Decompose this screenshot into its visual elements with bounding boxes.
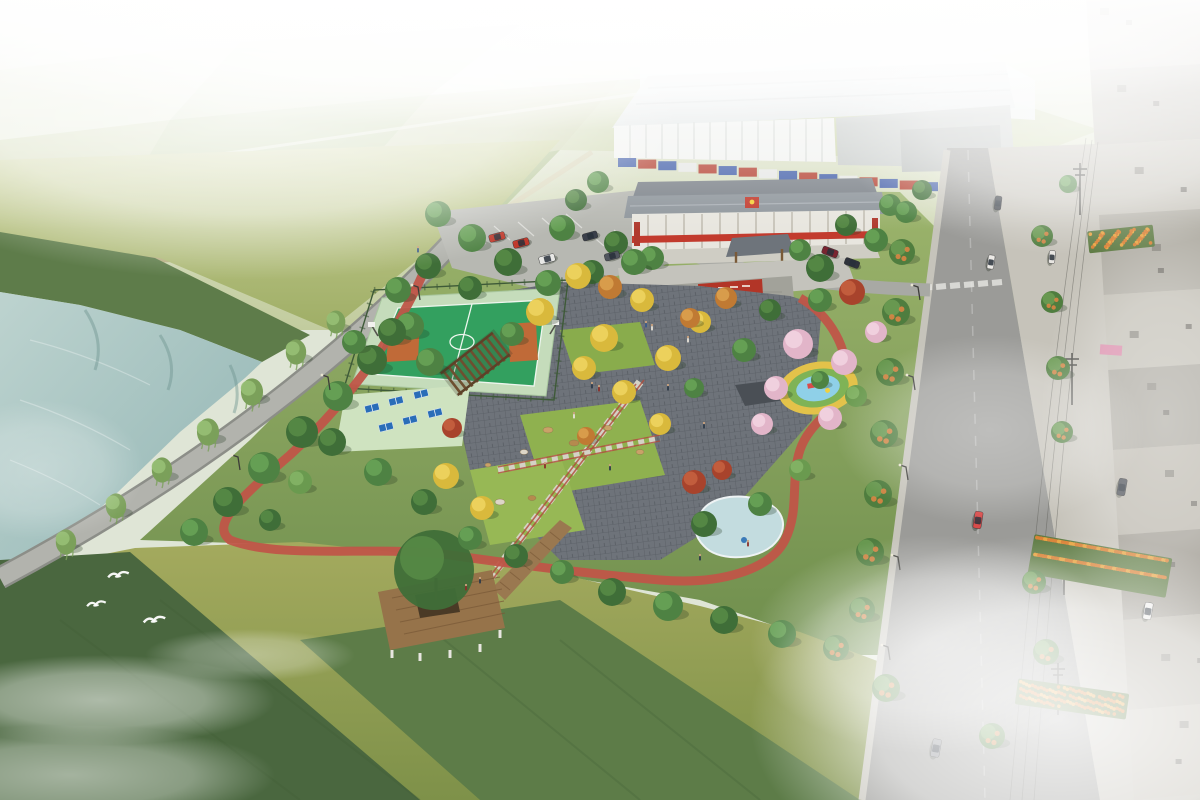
- tree-canopy-highlight: [574, 357, 588, 371]
- person: [651, 324, 653, 331]
- tree-canopy-highlight: [681, 309, 693, 321]
- tree-canopy-highlight: [753, 414, 766, 427]
- pond-play-equipment: [741, 537, 747, 543]
- tree-canopy-highlight: [600, 580, 616, 596]
- bloom-cluster: [901, 256, 906, 261]
- tree-canopy-highlight: [344, 331, 358, 345]
- tree-canopy-highlight: [812, 372, 822, 382]
- bloom-cluster: [1051, 305, 1055, 309]
- person: [609, 464, 611, 471]
- person-head: [667, 384, 669, 386]
- tree-canopy-highlight: [152, 459, 166, 473]
- farm-sculpture: [520, 450, 528, 455]
- tree-canopy-highlight: [443, 419, 455, 431]
- person-body: [699, 556, 701, 561]
- person: [598, 385, 600, 392]
- bloom-cluster: [877, 498, 883, 504]
- person-body: [747, 542, 749, 547]
- person: [747, 540, 749, 547]
- bloom-cluster: [896, 254, 901, 259]
- tree-canopy-highlight: [785, 331, 802, 348]
- person-head: [747, 540, 749, 542]
- tree-canopy-highlight: [320, 430, 336, 446]
- tree-canopy-highlight: [791, 240, 804, 253]
- tree-canopy-highlight: [684, 471, 698, 485]
- tree-canopy-highlight: [506, 545, 520, 559]
- streetlight-lamp: [911, 284, 914, 287]
- tree-canopy-highlight: [867, 322, 880, 335]
- tree-canopy-highlight: [592, 326, 608, 342]
- tree-canopy-highlight: [891, 241, 906, 256]
- rendering-canvas: [0, 0, 1200, 800]
- person-body: [465, 586, 467, 591]
- person: [591, 382, 593, 389]
- tree-canopy-highlight: [623, 251, 638, 266]
- farm-sculpture: [495, 499, 505, 505]
- bloom-cluster: [871, 496, 877, 502]
- person: [544, 462, 546, 469]
- tree-canopy-highlight: [810, 289, 824, 303]
- person-body: [609, 466, 611, 471]
- person-head: [645, 321, 647, 323]
- tree-canopy-highlight: [528, 300, 544, 316]
- tree-canopy-highlight: [567, 265, 582, 280]
- tree-canopy-highlight: [693, 513, 708, 528]
- person-head: [544, 462, 546, 464]
- tree-canopy-highlight: [833, 351, 848, 366]
- person-head: [687, 336, 689, 338]
- person: [573, 412, 575, 419]
- farm-sculpture: [485, 463, 491, 467]
- person-head: [465, 584, 467, 586]
- person-head: [591, 382, 593, 384]
- tree-canopy-highlight: [215, 489, 232, 506]
- tree-canopy-highlight: [472, 497, 486, 511]
- person-body: [591, 384, 593, 389]
- person: [667, 384, 669, 391]
- tree-canopy-highlight: [250, 454, 269, 473]
- person-body: [645, 323, 647, 328]
- car-windshield: [1049, 254, 1054, 260]
- tree-canopy-highlight: [717, 288, 730, 301]
- fog-patch: [750, 535, 1120, 755]
- tree-canopy-highlight: [657, 347, 672, 362]
- tree-canopy-highlight: [288, 418, 307, 437]
- streetlight-lamp: [411, 284, 414, 287]
- tree-canopy-highlight: [413, 491, 428, 506]
- tree-canopy-highlight: [418, 350, 434, 366]
- tree-canopy-highlight: [713, 461, 725, 473]
- tree-canopy-highlight: [841, 281, 856, 296]
- person-body: [479, 579, 481, 584]
- tree-canopy-highlight: [380, 320, 396, 336]
- person-body: [667, 386, 669, 391]
- tree-canopy-highlight: [632, 289, 646, 303]
- tree-canopy-highlight: [496, 250, 512, 266]
- tree-canopy-highlight: [884, 300, 900, 316]
- fog-patch: [145, 629, 355, 681]
- tree-canopy-highlight: [290, 471, 304, 485]
- person-head: [598, 385, 600, 387]
- tree-canopy-highlight: [600, 276, 614, 290]
- person-head: [573, 412, 575, 414]
- person-body: [598, 387, 600, 392]
- tree-canopy-highlight: [241, 381, 256, 396]
- farm-sculpture: [569, 440, 579, 446]
- person: [699, 554, 701, 561]
- tree-canopy-highlight: [866, 229, 880, 243]
- tree-canopy-highlight: [712, 608, 728, 624]
- horizon-haze: [0, 0, 1200, 230]
- tree-canopy-highlight: [537, 272, 552, 287]
- person-body: [703, 424, 705, 429]
- tree-canopy-highlight: [261, 510, 274, 523]
- tree-canopy-highlight: [325, 383, 342, 400]
- tree-canopy-highlight: [685, 379, 697, 391]
- person-head: [651, 324, 653, 326]
- tree-canopy-highlight: [651, 414, 664, 427]
- tree-canopy-highlight: [655, 593, 672, 610]
- tree-canopy-highlight: [614, 381, 628, 395]
- bloom-cluster: [905, 247, 910, 252]
- person-head: [703, 422, 705, 424]
- tree-canopy-highlight: [578, 428, 588, 438]
- tree-canopy-highlight: [366, 460, 382, 476]
- bloom-cluster: [899, 306, 905, 312]
- tree-canopy-highlight: [750, 493, 764, 507]
- person-body: [687, 338, 689, 343]
- tree-canopy-highlight: [820, 407, 834, 421]
- bloom-cluster: [1047, 304, 1051, 308]
- tree-canopy-highlight: [761, 300, 774, 313]
- aerial-park-rendering: [0, 0, 1200, 800]
- streetlight-lamp: [321, 374, 324, 377]
- person: [479, 577, 481, 584]
- tree-canopy-highlight: [327, 312, 340, 325]
- person-head: [699, 554, 701, 556]
- farm-sculpture: [636, 450, 644, 455]
- tree-canopy-highlight: [286, 341, 300, 355]
- car-windshield: [988, 259, 994, 266]
- person-body: [573, 414, 575, 419]
- backboard-west: [368, 322, 375, 327]
- person-head: [609, 464, 611, 466]
- tree-canopy-highlight: [734, 339, 748, 353]
- person: [645, 321, 647, 328]
- tree-canopy-highlight: [460, 527, 474, 541]
- person-head: [479, 577, 481, 579]
- farm-sculpture: [543, 427, 553, 433]
- person-body: [544, 464, 546, 469]
- tree-canopy-highlight: [606, 232, 620, 246]
- farm-sculpture: [528, 496, 536, 501]
- tree-canopy-highlight: [460, 277, 474, 291]
- streetlight-lamp: [231, 454, 234, 457]
- person: [687, 336, 689, 343]
- person: [465, 584, 467, 591]
- bloom-cluster: [889, 314, 895, 320]
- person: [703, 422, 705, 429]
- tree-canopy-highlight: [791, 460, 804, 473]
- tree-canopy-highlight: [197, 421, 212, 436]
- tree-canopy-highlight: [766, 377, 780, 391]
- tree-canopy-highlight: [552, 561, 566, 575]
- person-body: [651, 326, 653, 331]
- bloom-cluster: [895, 316, 901, 322]
- tree-canopy-highlight: [435, 465, 450, 480]
- bloom-cluster: [1054, 298, 1058, 302]
- tree-canopy-highlight: [182, 520, 198, 536]
- tree-canopy-highlight: [1043, 292, 1056, 305]
- old-tree-canopy-highlight: [400, 536, 444, 580]
- tree-canopy-highlight: [387, 279, 402, 294]
- tree-canopy-highlight: [502, 323, 516, 337]
- farm-sculpture: [604, 426, 612, 431]
